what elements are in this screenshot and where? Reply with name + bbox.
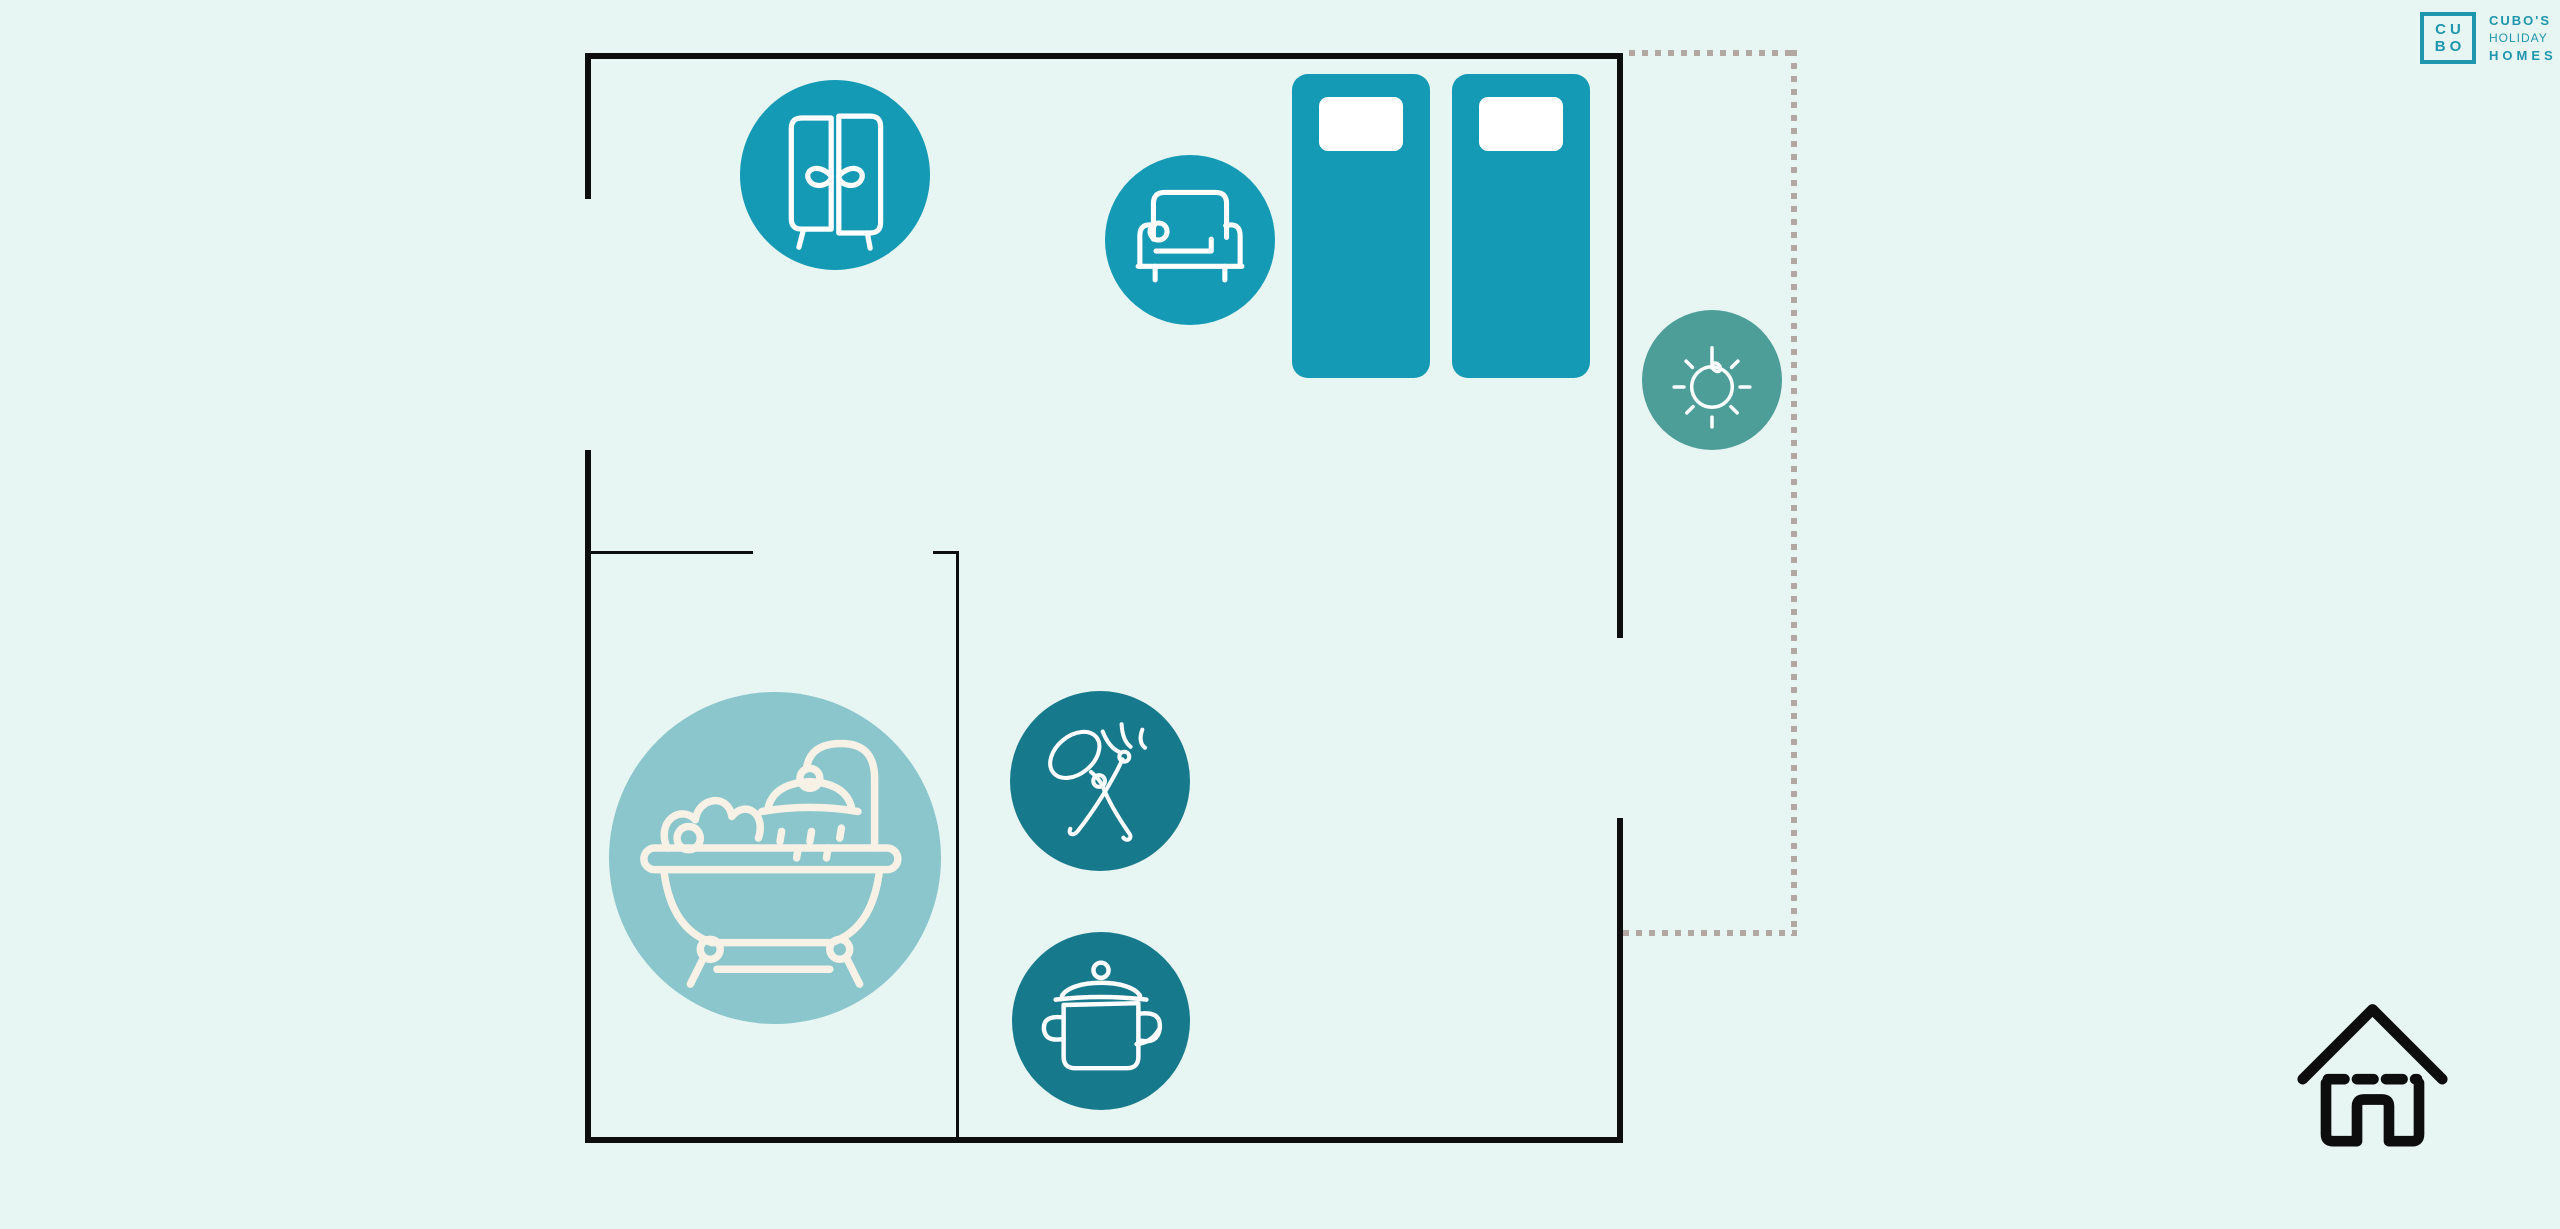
floorplan-canvas: CU BO CUBO'S HOLIDAY HOMES [0, 0, 2560, 1229]
brand-wordmark-line3: HOMES [2489, 48, 2557, 63]
wall-right-upper [1617, 53, 1623, 638]
brand-monogram: CU BO [2420, 12, 2476, 64]
brand-logo: CU BO CUBO'S HOLIDAY HOMES [2420, 12, 2557, 64]
wall-top [585, 53, 1623, 59]
house-icon [2295, 986, 2450, 1151]
bathtub-icon [609, 692, 941, 1024]
sofa-icon [1105, 155, 1275, 325]
icon-circle [740, 80, 930, 270]
balcony-outline-right [1791, 50, 1797, 936]
wardrobe-icon [740, 80, 930, 270]
brand-monogram-line2: BO [2435, 38, 2466, 55]
bathroom-wall-top [588, 551, 753, 554]
cooking-pot-icon [1012, 932, 1190, 1110]
wall-right-lower [1617, 818, 1623, 1143]
brand-wordmark-line1: CUBO'S [2489, 13, 2557, 28]
brand-wordmark-line2: HOLIDAY [2489, 31, 2557, 45]
beds-group [1292, 74, 1590, 378]
pillow-shape [1319, 97, 1403, 151]
bathroom-wall-right [956, 551, 959, 1140]
icon-circle [1105, 155, 1275, 325]
wall-bottom [585, 1137, 1623, 1143]
cutlery-icon [1010, 691, 1190, 871]
icon-circle [609, 692, 941, 1024]
brand-monogram-line1: CU [2435, 21, 2465, 38]
wall-left-upper [585, 53, 591, 199]
house-glyph [2303, 1009, 2443, 1141]
sun-icon [1642, 310, 1782, 450]
icon-circle [1012, 932, 1190, 1110]
pillow-shape [1479, 97, 1563, 151]
icon-circle [1642, 310, 1782, 450]
brand-wordmark: CUBO'S HOLIDAY HOMES [2489, 12, 2557, 64]
balcony-outline-bottom [1623, 930, 1797, 936]
balcony-outline-top [1629, 50, 1797, 56]
